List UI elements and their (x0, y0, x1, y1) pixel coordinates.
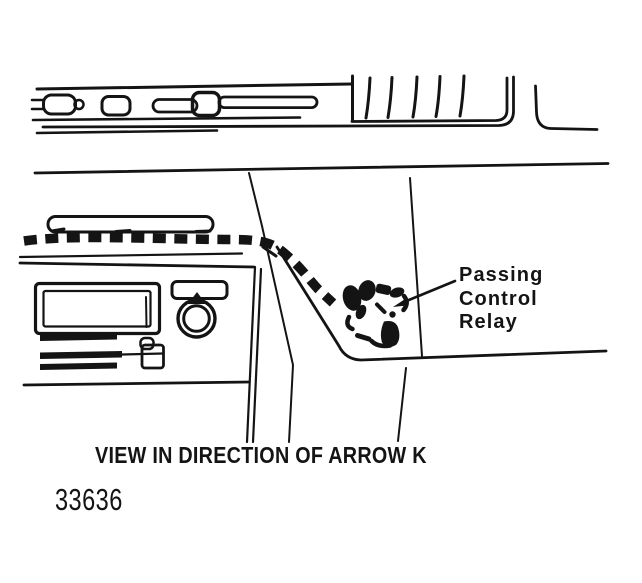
radio-slot-bar (40, 363, 117, 371)
figure-number: 33636 (55, 484, 123, 515)
radio-display-window (44, 291, 151, 327)
dash-lower-edge (35, 164, 608, 174)
console-edge-lines (249, 173, 422, 442)
callout-line-2: Control (459, 288, 543, 312)
callout-line-1: Passing (459, 264, 543, 288)
callout-line-3: Relay (459, 311, 543, 335)
view-direction-caption: VIEW IN DIRECTION OF ARROW K (95, 444, 427, 467)
service-manual-figure: Passing Control Relay VIEW IN DIRECTION … (0, 0, 642, 583)
radio-slot-bar (40, 351, 122, 359)
radio-unit (20, 217, 261, 443)
callout-passing-control-relay: Passing Control Relay (459, 264, 543, 335)
passing-control-relay-blob (340, 278, 407, 347)
